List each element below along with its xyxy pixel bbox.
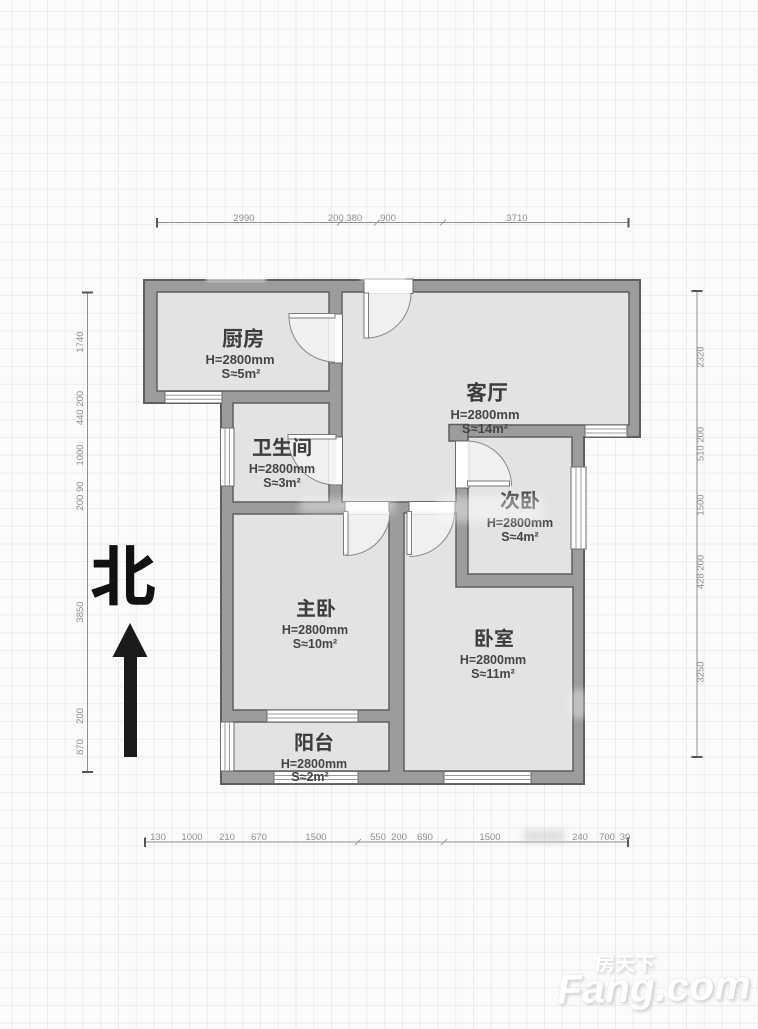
svg-text:S≈2m²: S≈2m² — [291, 770, 328, 784]
svg-text:1500: 1500 — [696, 494, 707, 515]
svg-text:2990: 2990 — [233, 213, 254, 224]
svg-text:200: 200 — [391, 832, 407, 843]
svg-text:670: 670 — [251, 832, 267, 843]
svg-text:S≈11m²: S≈11m² — [471, 667, 515, 681]
svg-text:1740: 1740 — [75, 331, 86, 352]
svg-text:H=2800mm: H=2800mm — [205, 352, 274, 367]
svg-text:440 200: 440 200 — [75, 391, 86, 425]
svg-text:870: 870 — [75, 739, 86, 755]
svg-text:1000: 1000 — [181, 832, 202, 843]
svg-text:H=2800mm: H=2800mm — [460, 653, 526, 667]
svg-text:S≈4m²: S≈4m² — [501, 530, 538, 544]
svg-text:Fang.com: Fang.com — [556, 961, 751, 1012]
svg-text:130: 130 — [150, 832, 166, 843]
svg-text:H=2800mm: H=2800mm — [450, 407, 519, 422]
svg-text:S≈14m²: S≈14m² — [462, 421, 509, 436]
svg-text:1000: 1000 — [75, 444, 86, 465]
svg-text:900: 900 — [380, 213, 396, 224]
svg-text:S≈10m²: S≈10m² — [293, 637, 337, 651]
svg-text:30: 30 — [620, 832, 631, 843]
svg-text:S≈5m²: S≈5m² — [222, 366, 262, 381]
svg-text:550: 550 — [370, 832, 386, 843]
svg-text:510 200: 510 200 — [696, 427, 707, 461]
svg-text:428 200: 428 200 — [696, 555, 707, 589]
svg-text:1500: 1500 — [479, 832, 500, 843]
svg-text:3850: 3850 — [75, 601, 86, 622]
svg-text:700: 700 — [599, 832, 615, 843]
svg-text:200 380: 200 380 — [328, 213, 362, 224]
svg-text:S≈3m²: S≈3m² — [263, 476, 300, 490]
svg-text:200: 200 — [75, 708, 86, 724]
svg-text:H=2800mm: H=2800mm — [282, 623, 348, 637]
svg-text:3710: 3710 — [506, 213, 527, 224]
svg-text:1500: 1500 — [305, 832, 326, 843]
svg-text:3250: 3250 — [696, 661, 707, 682]
svg-text:2320: 2320 — [696, 346, 707, 367]
svg-text:200 90: 200 90 — [75, 481, 86, 510]
svg-text:H=2800mm: H=2800mm — [281, 757, 347, 771]
svg-text:H=2800mm: H=2800mm — [249, 462, 315, 476]
svg-text:210: 210 — [219, 832, 235, 843]
svg-text:240: 240 — [572, 832, 588, 843]
svg-text:690: 690 — [417, 832, 433, 843]
